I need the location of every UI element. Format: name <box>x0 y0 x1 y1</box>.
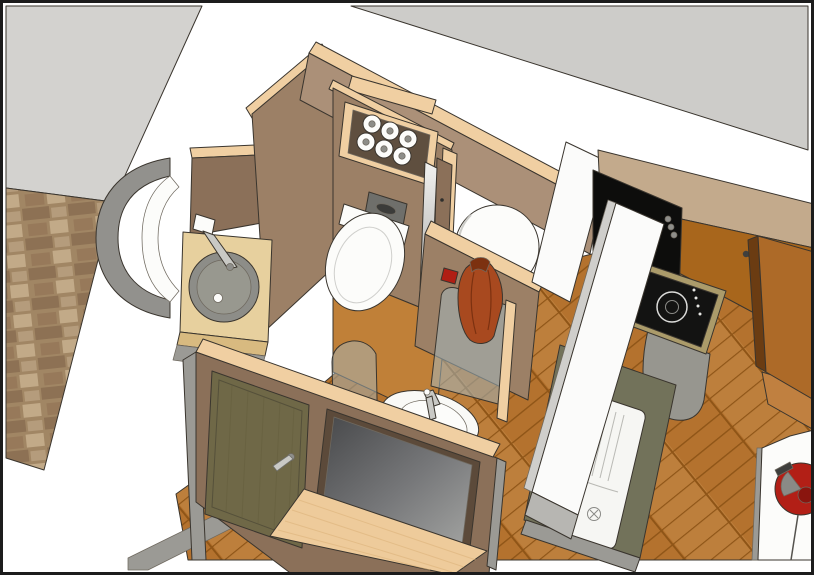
basin-faucet-cap <box>424 389 430 395</box>
hob-control-dot <box>693 289 696 292</box>
towel-bar-end <box>743 251 749 257</box>
tp-roll-core <box>399 153 405 159</box>
hob-control-dot <box>697 305 700 308</box>
washbasin-drain <box>214 294 223 303</box>
oven-knob <box>668 224 674 230</box>
vanity-faucet-base <box>227 264 234 271</box>
model-viewport <box>0 0 814 575</box>
oven-knob <box>665 216 671 222</box>
hob-control-dot <box>695 297 698 300</box>
tp-roll-core <box>381 146 387 152</box>
hinge-dot <box>440 198 444 202</box>
tp-roll-core <box>405 136 411 142</box>
tp-roll-core <box>363 139 369 145</box>
tp-roll-core <box>387 128 393 134</box>
tp-roll-core <box>369 121 375 127</box>
hob-control-dot <box>699 313 702 316</box>
oven-knob <box>671 232 677 238</box>
washbasin-inner <box>197 260 251 314</box>
